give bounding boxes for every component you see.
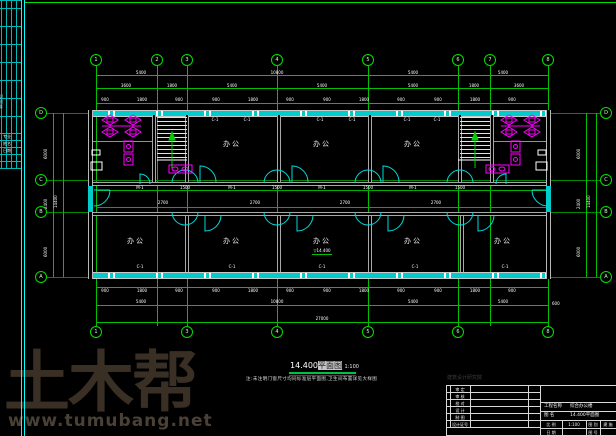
- cad-canvas: 土木帮 www.tumubang.net 会签栏 专业 姓名 日期: [0, 0, 616, 436]
- titleblock-line: [528, 385, 529, 427]
- white-fixtures: [91, 150, 547, 170]
- titleblock-line: [540, 428, 616, 429]
- titleblock-line: [540, 420, 616, 421]
- titleblock-line: [446, 406, 540, 407]
- drawing-name-value: 14.400平面图: [570, 413, 599, 418]
- titleblock-line: [540, 402, 616, 403]
- titleblock-cell: 1:100: [568, 422, 580, 427]
- door-swing-arcs: [94, 166, 548, 231]
- drawing-title-scale: 1:100: [345, 364, 359, 370]
- titleblock-line: [540, 411, 616, 412]
- titleblock-row-label: 校 对: [455, 401, 464, 406]
- drawing-name-label: 图 名: [544, 413, 554, 418]
- titleblock-row-label: 审 定: [455, 387, 464, 392]
- project-name-value: 综合办公楼: [570, 404, 593, 409]
- stair-direction-arrows: [169, 132, 478, 168]
- titleblock-cell: 图 号: [588, 430, 597, 435]
- titleblock-line: [446, 427, 540, 428]
- titleblock-cell: 图 别: [588, 422, 597, 427]
- titleblock-cell: 日 期: [546, 430, 555, 435]
- titleblock-line: [446, 385, 447, 435]
- toilet-fixtures: [102, 115, 540, 173]
- titleblock-row-label: 制 图: [455, 415, 464, 420]
- titleblock-line: [446, 399, 540, 400]
- project-name-label: 工程名称: [544, 404, 562, 409]
- titleblock-line: [600, 420, 601, 435]
- drawing-title: 14.400平面图 1:100: [290, 361, 359, 372]
- titleblock-line: [450, 385, 451, 427]
- titleblock-cell: 比 例: [546, 422, 555, 427]
- titleblock-line: [586, 420, 587, 435]
- drawing-note: 注:未注明门窗尺寸均同标准层平面图,卫生间布置详见大样图: [246, 376, 377, 382]
- titleblock-line: [446, 420, 540, 421]
- title-underline: [289, 372, 356, 374]
- titleblock-line: [446, 392, 540, 393]
- titleblock-row-label: 设计证号: [452, 422, 468, 427]
- titleblock-cell: 建 施: [603, 422, 612, 427]
- titleblock-line: [562, 420, 563, 435]
- titleblock-row-label: 设 计: [455, 408, 464, 413]
- titleblock-row-label: 审 核: [455, 394, 464, 399]
- drawing-title-number: 14.400: [290, 361, 318, 370]
- drawing-title-suffix: 平面图: [318, 361, 342, 370]
- titleblock-line: [446, 385, 616, 386]
- titleblock-line: [470, 385, 471, 427]
- titleblock-line: [446, 413, 540, 414]
- company-name: 建筑设计研究院: [447, 374, 482, 381]
